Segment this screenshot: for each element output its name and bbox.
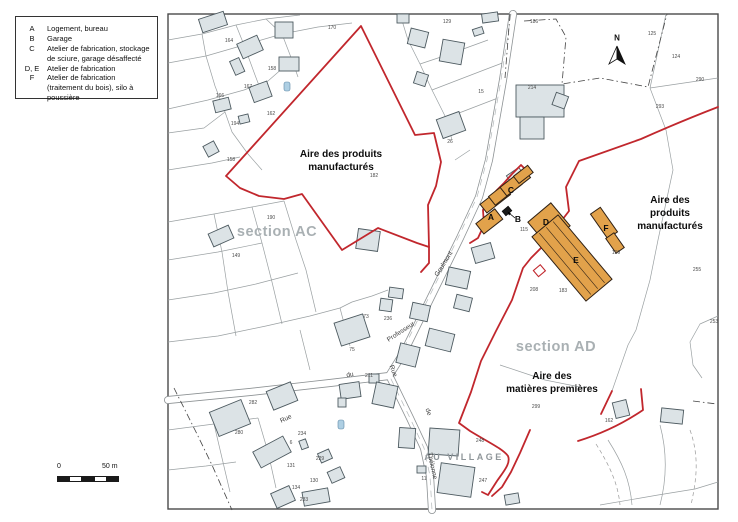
- parcel-number: 233: [300, 497, 308, 503]
- parcel-number: 199: [612, 250, 620, 256]
- parcel-number: 26: [447, 139, 453, 145]
- north-label: N: [614, 34, 620, 43]
- building-label-d: D: [543, 217, 549, 227]
- legend-item: ALogement, bureau: [20, 24, 152, 34]
- parcel-number: 282: [249, 400, 257, 406]
- parcel-number: 299: [532, 404, 540, 410]
- parcel-number: 15: [478, 89, 484, 95]
- parcel-number: 253: [710, 319, 718, 325]
- parcel-number: 186: [530, 19, 538, 25]
- legend-key: C: [20, 44, 44, 64]
- street-label: du: [346, 371, 354, 379]
- legend-item: CAtelier de fabrication, stockage de sci…: [20, 44, 152, 64]
- legend-item: BGarage: [20, 34, 152, 44]
- parcel-number: 190: [267, 215, 275, 221]
- legend-key: D, E: [20, 64, 44, 74]
- parcel-number: 131: [287, 463, 295, 469]
- scale-bar: 0 50 m: [48, 461, 138, 489]
- zone-label: Aire des produits manufacturés: [300, 148, 382, 174]
- parcel-number: 73: [363, 314, 369, 320]
- parcel-number: 158: [227, 157, 235, 163]
- legend-item: FAtelier de fabrication (traitement du b…: [20, 73, 152, 103]
- parcel-number: 280: [235, 430, 243, 436]
- section-label: section AC: [237, 224, 317, 240]
- parcel-number: 11: [421, 476, 426, 482]
- parcel-number: 234: [298, 431, 306, 437]
- legend-key: A: [20, 24, 44, 34]
- parcel-number: 158: [268, 66, 276, 72]
- legend-text: Atelier de fabrication, stockage de sciu…: [47, 44, 152, 64]
- legend-text: Garage: [47, 34, 152, 44]
- parcel-number: 194: [231, 121, 239, 127]
- parcel-number: 125: [648, 31, 656, 37]
- parcel-number: 183: [559, 288, 567, 294]
- parcel-number: 229: [316, 456, 324, 462]
- parcel-number: 130: [310, 478, 318, 484]
- scale-bar-segments: [57, 476, 119, 482]
- parcel-number: 170: [328, 25, 336, 31]
- parcel-number: 115: [520, 227, 528, 233]
- parcel-number: 247: [479, 478, 487, 484]
- parcel-number: 255: [693, 267, 701, 273]
- legend-item: D, EAtelier de fabrication: [20, 64, 152, 74]
- zone-label: Aire des produits manufacturés: [636, 194, 704, 233]
- parcel-number: 236: [384, 316, 392, 322]
- legend-key: F: [20, 73, 44, 103]
- zone-label: Aire des matières premières: [506, 370, 598, 396]
- legend-text: Logement, bureau: [47, 24, 152, 34]
- section-label: section AD: [516, 339, 596, 355]
- building-label-a: A: [488, 212, 494, 222]
- scale-end-label: 50 m: [102, 463, 118, 470]
- parcel-number: 162: [267, 111, 275, 117]
- legend-panel: ALogement, bureauBGarageCAtelier de fabr…: [15, 16, 158, 99]
- parcel-number: 164: [225, 38, 233, 44]
- parcel-number: 134: [292, 485, 300, 491]
- cadastral-map-figure: ALogement, bureauBGarageCAtelier de fabr…: [0, 0, 738, 522]
- parcel-number: 75: [349, 347, 355, 353]
- parcel-number: 211: [365, 373, 373, 379]
- parcel-number: 124: [672, 54, 680, 60]
- parcel-number: 129: [443, 19, 451, 25]
- legend-text: Atelier de fabrication: [47, 64, 152, 74]
- parcel-number: 6: [290, 440, 293, 446]
- parcel-number: 149: [232, 253, 240, 259]
- parcel-number: 182: [370, 173, 378, 179]
- parcel-number: 167: [244, 84, 252, 90]
- building-label-f: F: [603, 223, 608, 233]
- parcel-number: 214: [528, 85, 536, 91]
- scale-start-label: 0: [57, 463, 61, 470]
- legend-text: Atelier de fabrication (traitement du bo…: [47, 73, 152, 103]
- building-label-b: B: [515, 214, 521, 224]
- parcel-number: 293: [656, 104, 664, 110]
- building-label-c: C: [508, 185, 514, 195]
- parcel-number: 248: [476, 438, 484, 444]
- building-label-e: E: [573, 255, 579, 265]
- legend-key: B: [20, 34, 44, 44]
- parcel-number: 162: [605, 418, 613, 424]
- parcel-number: 166: [216, 93, 224, 99]
- parcel-number: 208: [530, 287, 538, 293]
- village-label: AU VILLAGE: [424, 452, 504, 462]
- parcel-number: 290: [696, 77, 704, 83]
